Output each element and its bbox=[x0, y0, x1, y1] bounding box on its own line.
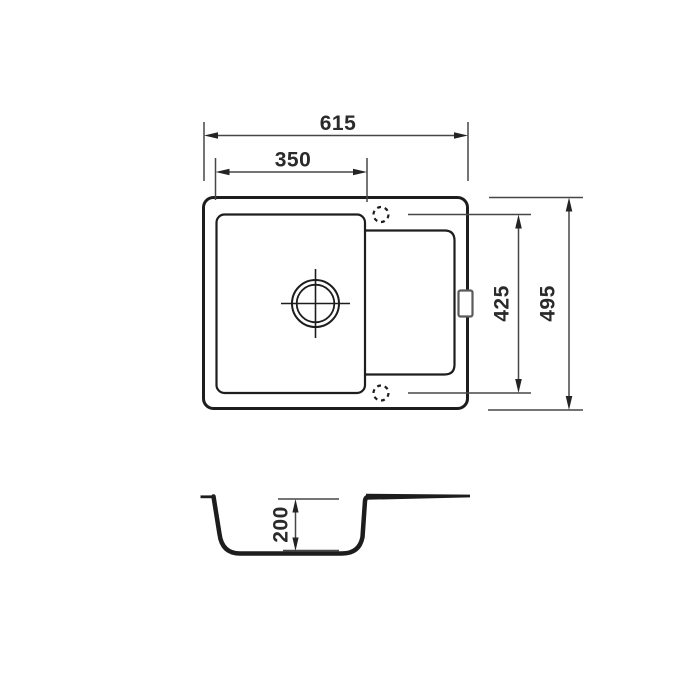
arrow-down-icon bbox=[515, 379, 522, 393]
sink-section-view: 200 bbox=[201, 494, 471, 554]
dim-bowl-depth: 200 bbox=[270, 499, 299, 551]
tap-hole-top-icon bbox=[374, 207, 389, 222]
sink-dimension-drawing: 615 350 425 495 bbox=[0, 0, 700, 700]
arrow-up-icon bbox=[515, 215, 522, 229]
arrow-up-icon bbox=[292, 499, 298, 513]
arrow-right-icon bbox=[353, 169, 367, 176]
tap-hole-bottom-icon bbox=[374, 386, 389, 401]
drawing-canvas: 615 350 425 495 bbox=[0, 0, 700, 700]
sink-drainboard bbox=[365, 231, 455, 375]
arrow-down-icon bbox=[292, 538, 298, 552]
arrow-up-icon bbox=[566, 198, 573, 212]
arrow-right-icon bbox=[454, 132, 468, 139]
sink-top-view bbox=[204, 198, 473, 409]
dim-label-bowl-width: 350 bbox=[275, 149, 312, 172]
arrow-down-icon bbox=[566, 396, 573, 410]
dim-bowl-width: 350 bbox=[216, 149, 368, 203]
dim-label-holes-span: 425 bbox=[491, 285, 514, 322]
arrow-left-icon bbox=[216, 169, 230, 176]
section-drainboard-surface bbox=[366, 494, 470, 500]
dim-overall-width: 615 bbox=[204, 112, 468, 181]
mounting-clip-icon bbox=[459, 291, 473, 317]
dim-label-bowl-depth: 200 bbox=[270, 506, 293, 543]
arrow-left-icon bbox=[204, 132, 218, 139]
dim-label-overall-width: 615 bbox=[320, 112, 357, 135]
dim-label-overall-depth: 495 bbox=[537, 285, 560, 322]
drain-crosshair-icon bbox=[281, 269, 350, 338]
